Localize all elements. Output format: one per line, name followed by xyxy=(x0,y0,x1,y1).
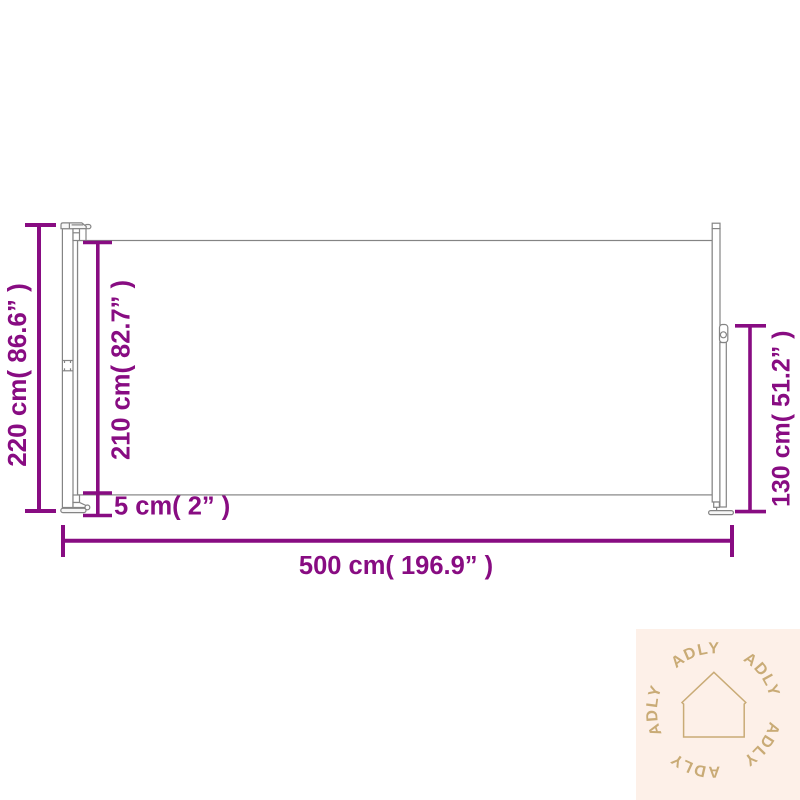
svg-text:210 cm( 82.7” ): 210 cm( 82.7” ) xyxy=(108,280,136,460)
svg-text:5 cm( 2” ): 5 cm( 2” ) xyxy=(114,493,230,521)
svg-text:220 cm( 86.6” ): 220 cm( 86.6” ) xyxy=(2,283,32,467)
svg-text:130 cm( 51.2” ): 130 cm( 51.2” ) xyxy=(768,331,796,508)
svg-text:500 cm( 196.9” ): 500 cm( 196.9” ) xyxy=(299,552,493,580)
